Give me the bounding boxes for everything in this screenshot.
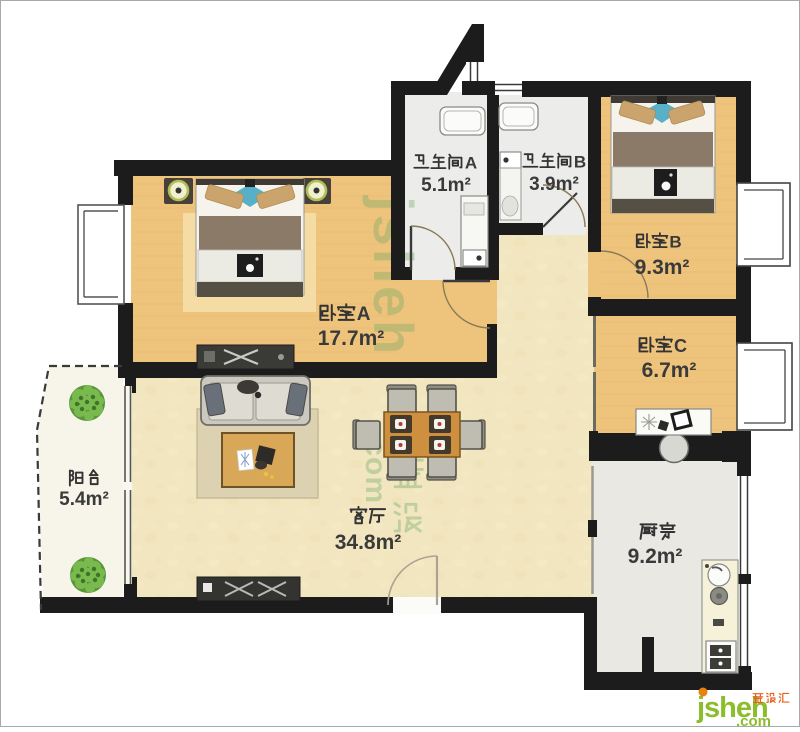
svg-text:B: B [574,152,586,171]
svg-text:A: A [357,304,371,325]
svg-text:34.8m²: 34.8m² [335,531,402,554]
svg-text:3.9m²: 3.9m² [529,174,579,195]
svg-text:9.3m²: 9.3m² [635,256,690,279]
svg-text:6.7m²: 6.7m² [642,359,697,382]
svg-text:5.4m²: 5.4m² [59,489,109,510]
svg-text:5.1m²: 5.1m² [421,175,471,196]
svg-text:B: B [669,232,681,251]
svg-text:17.7m²: 17.7m² [318,327,385,350]
svg-text:9.2m²: 9.2m² [628,545,683,568]
svg-text:C: C [674,336,687,356]
svg-text:A: A [465,153,477,172]
svg-text:.com: .com [736,713,771,727]
